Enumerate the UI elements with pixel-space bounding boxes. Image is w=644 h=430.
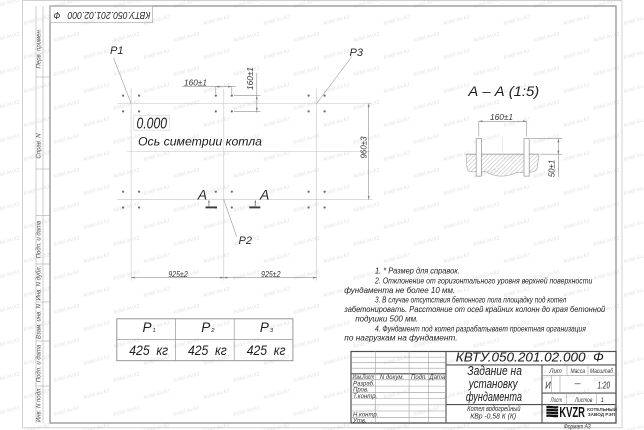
svg-text:1:20: 1:20 [598,380,611,392]
svg-text:N докум.: N докум. [380,375,404,381]
svg-text:Ось симетрии котла: Ось симетрии котла [138,134,262,148]
svg-text:KVZR: KVZR [559,405,585,421]
svg-text:Т.контр.: Т.контр. [353,394,377,400]
svg-text:Р: Р [201,320,210,335]
svg-text:забетонировать. Расстояние от: забетонировать. Расстояние от осей крайн… [343,305,605,314]
svg-text:А: А [197,187,207,203]
svg-text:Р1: Р1 [110,45,123,57]
svg-text:Инв. N дубл.: Инв. N дубл. [37,266,43,301]
svg-text:Р: Р [260,320,269,335]
svg-text:Листов: Листов [574,398,592,404]
svg-text:Пров.: Пров. [353,388,369,394]
svg-text:КВТУ.050.201.02.000 Ф: КВТУ.050.201.02.000 Ф [53,9,150,20]
svg-text:КВр -0,58 К (К): КВр -0,58 К (К) [470,413,516,420]
svg-text:Разраб.: Разраб. [353,381,375,387]
svg-text:1: 1 [601,398,604,404]
svg-text:Р2: Р2 [239,235,252,247]
svg-text:1. * Размер для справок.: 1. * Размер для справок. [375,267,460,276]
svg-text:2. Отклонение от горизонтально: 2. Отклонение от горизонтального уровня … [374,276,593,285]
svg-text:Лист: Лист [550,398,562,404]
svg-text:Котел водогрейный: Котел водогрейный [467,405,520,413]
svg-text:Изм.Лист: Изм.Лист [353,375,375,381]
svg-text:Дата: Дата [428,375,445,381]
svg-text:3. В случае отсутствия бетонно: 3. В случае отсутствия бетонного пола пл… [375,296,567,305]
svg-text:925±2: 925±2 [261,269,281,279]
svg-text:по нагрузкам на фундамент.: по нагрузкам на фундамент. [344,333,457,342]
svg-text:Р: Р [142,320,151,335]
svg-text:Формат А3: Формат А3 [564,423,591,430]
svg-text:0.000: 0.000 [137,115,168,132]
svg-text:Подп. и дата: Подп. и дата [37,220,43,258]
svg-text:1: 1 [153,328,156,334]
svg-text:50±1: 50±1 [547,160,557,178]
svg-text:160±1: 160±1 [184,77,207,87]
svg-text:Справ. N: Справ. N [37,133,43,159]
svg-text:ЗАВОД РЭП: ЗАВОД РЭП [588,412,615,417]
svg-text:А: А [259,187,269,203]
svg-text:И: И [545,380,551,392]
svg-text:Утв.: Утв. [352,419,367,425]
svg-text:Подп.: Подп. [411,375,427,381]
svg-text:фундамента не более 10 мм.: фундамента не более 10 мм. [344,286,455,295]
svg-text:925±2: 925±2 [168,269,188,279]
svg-text:425 кг: 425 кг [188,343,227,358]
svg-text:–: – [574,378,581,390]
svg-text:А – А (1:5): А – А (1:5) [467,83,539,99]
svg-text:Масса: Масса [570,369,585,375]
svg-text:160±1: 160±1 [490,112,513,122]
svg-text:подушки 500 мм.: подушки 500 мм. [355,315,418,324]
svg-text:Масштаб: Масштаб [590,369,614,375]
svg-text:4. Фундамент под котел разраба: 4. Фундамент под котел разрабатывает про… [375,324,586,333]
svg-text:Взам. инв. N: Взам. инв. N [37,303,43,339]
svg-text:160±1: 160±1 [245,67,255,90]
svg-text:Н.контр.: Н.контр. [353,412,378,418]
svg-text:Перв. примен.: Перв. примен. [37,29,43,69]
svg-text:КВТУ.050.201.02.000 Ф: КВТУ.050.201.02.000 Ф [456,350,604,364]
svg-text:425 кг: 425 кг [247,343,286,358]
svg-text:425 кг: 425 кг [129,343,168,358]
svg-text:960±3: 960±3 [359,136,369,158]
svg-text:Подп. и дата: Подп. и дата [37,344,43,382]
svg-text:фундамента: фундамента [466,389,522,404]
svg-text:Инв. N подл.: Инв. N подл. [37,387,43,422]
svg-text:Лит: Лит [548,369,561,375]
